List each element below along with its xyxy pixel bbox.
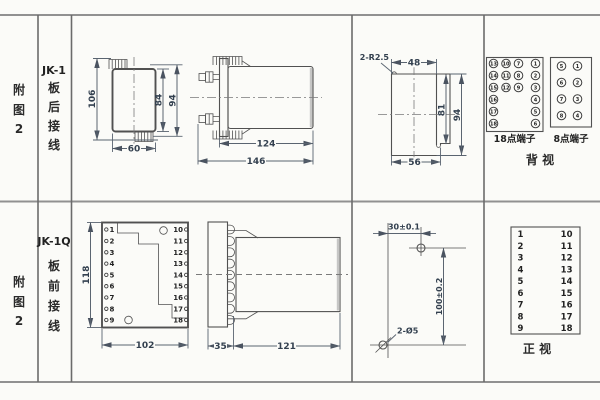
manual-page: 附 图 2 JK-1 板 后 接 线 附 图 2 JK-1Q 板 前 接 线 — [0, 0, 600, 400]
dim-48: 48 — [408, 59, 421, 69]
svg-text:11: 11 — [561, 242, 573, 252]
svg-text:6: 6 — [560, 80, 564, 86]
svg-text:2: 2 — [110, 238, 115, 246]
svg-text:3: 3 — [110, 249, 115, 257]
svg-text:6: 6 — [534, 121, 538, 127]
dim-124: 124 — [257, 140, 276, 150]
wiring-char: 接 — [48, 118, 60, 133]
svg-text:16: 16 — [173, 294, 183, 302]
model-label: JK-1 — [41, 64, 66, 77]
svg-text:14: 14 — [490, 73, 497, 79]
svg-text:15: 15 — [490, 85, 497, 91]
wiring-char: 板 — [48, 80, 61, 95]
dim-106: 106 — [88, 90, 98, 109]
wiring-char: 前 — [48, 278, 60, 293]
svg-text:2: 2 — [534, 73, 538, 79]
svg-text:4: 4 — [534, 97, 538, 103]
terminal-circles-8 — [557, 62, 582, 120]
svg-text:9: 9 — [517, 85, 521, 91]
svg-text:9: 9 — [110, 317, 115, 325]
jk1-panel-cutout: 48 2-R2.5 81 94 56 — [360, 53, 467, 168]
svg-text:1: 1 — [534, 61, 538, 67]
dim-35: 35 — [214, 342, 227, 352]
fig-label-char: 图 — [13, 103, 25, 117]
dim-holes: 2-Ø5 — [397, 326, 419, 336]
terminal-block-8 — [551, 58, 592, 128]
svg-text:11: 11 — [173, 238, 183, 246]
wiring-char: 接 — [48, 298, 60, 313]
mount-hole-bottom — [125, 316, 133, 324]
jk1q-front-dimensions: 118 102 — [82, 223, 188, 352]
svg-text:8: 8 — [517, 73, 521, 79]
front-terminals-left: 1 2 3 4 5 6 7 8 9 — [105, 226, 115, 325]
svg-text:4: 4 — [518, 266, 524, 276]
wiring-char: 线 — [48, 137, 60, 152]
dim-30: 30±0.1 — [388, 223, 420, 232]
label-18pt: 18点端子 — [494, 133, 536, 145]
svg-text:16: 16 — [490, 97, 497, 103]
fig-label-char: 图 — [13, 295, 25, 309]
svg-text:5: 5 — [560, 64, 564, 70]
svg-text:8: 8 — [518, 313, 524, 323]
drilling-dimensions: 30±0.1 100±0.2 2-Ø5 — [373, 223, 444, 346]
wiring-char: 线 — [48, 318, 60, 333]
svg-text:9: 9 — [518, 324, 524, 334]
dim-84: 84 — [154, 94, 164, 107]
svg-text:5: 5 — [110, 271, 115, 279]
svg-text:5: 5 — [534, 109, 538, 115]
technical-drawing: 附 图 2 JK-1 板 后 接 线 附 图 2 JK-1Q 板 前 接 线 — [0, 0, 600, 400]
svg-text:12: 12 — [561, 254, 573, 264]
top-mount-tab — [109, 60, 127, 70]
rear-view-terminals: 13 10 7 1 14 11 8 2 15 12 9 3 16 4 17 5 … — [487, 58, 592, 168]
top-row-labels: 附 图 2 JK-1 板 后 接 线 — [13, 64, 66, 152]
table-left-numbers: 1 2 3 4 5 6 7 8 9 — [518, 230, 524, 334]
front-view-label: 正 视 — [523, 341, 551, 356]
jk1q-front-view: 1 2 3 4 5 6 7 8 9 10 11 12 13 14 15 16 1… — [82, 223, 188, 352]
svg-text:8: 8 — [110, 305, 115, 313]
jk1q-side-view: 35 121 — [196, 222, 348, 352]
front-terminals-right: 10 11 12 13 14 15 16 17 18 — [173, 226, 188, 325]
svg-text:12: 12 — [173, 249, 183, 257]
dim-118: 118 — [82, 266, 92, 285]
fig-label-char: 2 — [15, 314, 23, 328]
jk1-side-view: 124 146 — [190, 57, 322, 168]
bottom-row-labels: 附 图 2 JK-1Q 板 前 接 线 — [13, 235, 71, 333]
svg-text:1: 1 — [518, 230, 524, 240]
wiring-char: 板 — [48, 258, 61, 273]
dim-102: 102 — [136, 341, 155, 351]
svg-text:6: 6 — [518, 289, 524, 299]
svg-text:2: 2 — [576, 80, 580, 86]
svg-text:7: 7 — [517, 61, 521, 67]
dim-146: 146 — [247, 157, 266, 167]
rear-view-label: 背 视 — [526, 152, 554, 167]
dim-81: 81 — [437, 104, 447, 117]
svg-text:18: 18 — [173, 317, 183, 325]
mount-hole-top — [160, 227, 168, 235]
svg-text:3: 3 — [534, 85, 538, 91]
svg-text:17: 17 — [561, 313, 573, 323]
fig-label-char: 附 — [13, 82, 25, 97]
label-8pt: 8点端子 — [553, 133, 589, 145]
svg-text:7: 7 — [560, 97, 564, 103]
svg-text:16: 16 — [561, 301, 573, 311]
svg-text:8: 8 — [560, 113, 564, 119]
dim-94: 94 — [168, 94, 178, 107]
drilling-plan: 30±0.1 100±0.2 2-Ø5 — [370, 223, 466, 359]
svg-text:12: 12 — [503, 85, 510, 91]
svg-text:14: 14 — [561, 277, 573, 287]
model-label: JK-1Q — [36, 235, 70, 248]
table-right-numbers: 10 11 12 13 14 15 16 17 18 — [561, 230, 573, 334]
dim-56: 56 — [408, 158, 421, 168]
svg-text:10: 10 — [561, 230, 573, 240]
svg-text:7: 7 — [110, 294, 115, 302]
svg-text:4: 4 — [110, 260, 115, 268]
svg-text:1: 1 — [576, 64, 580, 70]
svg-text:5: 5 — [518, 277, 524, 287]
svg-text:10: 10 — [173, 226, 183, 234]
svg-text:11: 11 — [503, 73, 510, 79]
svg-text:18: 18 — [490, 121, 497, 127]
terminal-stud-bottom — [199, 114, 220, 124]
svg-text:10: 10 — [503, 61, 510, 67]
svg-text:13: 13 — [490, 61, 497, 67]
wiring-char: 后 — [48, 99, 60, 114]
svg-text:15: 15 — [173, 283, 183, 291]
svg-text:13: 13 — [561, 266, 573, 276]
svg-text:13: 13 — [173, 260, 183, 268]
table-grid — [0, 15, 600, 382]
jk1-side-dimensions: 124 146 — [198, 124, 313, 167]
svg-text:2: 2 — [518, 242, 524, 252]
front-view-table: 1 2 3 4 5 6 7 8 9 10 11 12 13 14 15 16 1… — [511, 227, 580, 356]
svg-text:14: 14 — [173, 271, 183, 279]
fig-label-char: 附 — [13, 274, 25, 289]
dim-121: 121 — [277, 342, 296, 352]
fig-label-char: 2 — [15, 122, 23, 136]
dim-60: 60 — [128, 145, 141, 155]
jk1-front-dimensions: 106 84 94 60 — [88, 59, 182, 155]
terminal-circles-18 — [489, 59, 540, 128]
svg-text:15: 15 — [561, 289, 573, 299]
dim-radius: 2-R2.5 — [360, 53, 390, 62]
svg-text:1: 1 — [110, 226, 115, 234]
svg-text:7: 7 — [518, 301, 524, 311]
dim-94b: 94 — [453, 109, 463, 122]
svg-text:3: 3 — [576, 97, 580, 103]
svg-text:6: 6 — [110, 283, 115, 291]
svg-text:4: 4 — [576, 113, 580, 119]
terminal-stud-top — [199, 72, 220, 82]
svg-text:18: 18 — [561, 324, 573, 334]
dim-100: 100±0.2 — [435, 278, 444, 316]
terminal-numbers-18: 13 10 7 1 14 11 8 2 15 12 9 3 16 4 17 5 … — [490, 61, 538, 127]
svg-text:17: 17 — [173, 305, 183, 313]
jk1-front-view: 106 84 94 60 — [88, 57, 182, 155]
svg-text:3: 3 — [518, 254, 524, 264]
svg-text:17: 17 — [490, 109, 497, 115]
